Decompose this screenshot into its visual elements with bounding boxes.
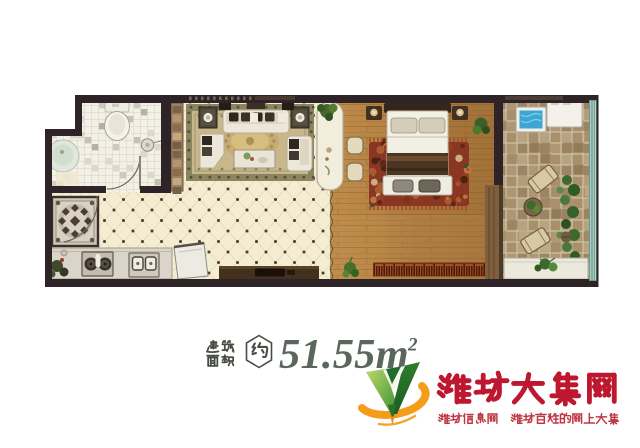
svg-text:2: 2 [407,335,418,356]
